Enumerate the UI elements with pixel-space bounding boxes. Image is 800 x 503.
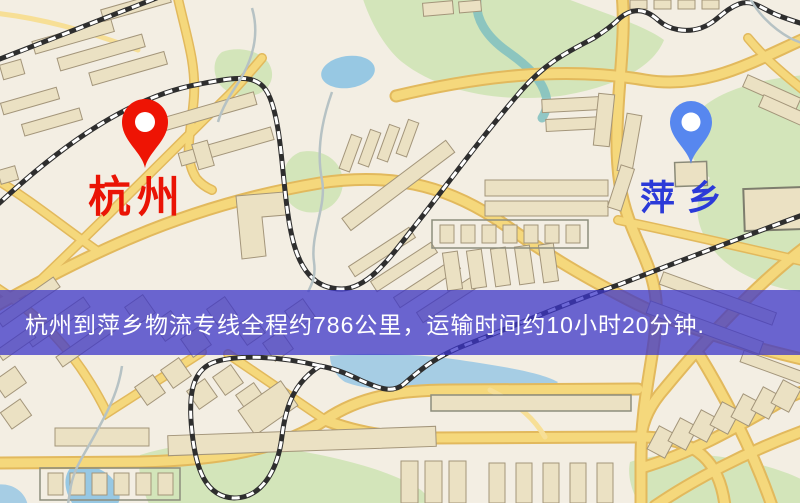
pin-hole [682, 113, 701, 132]
route-info-text: 杭州到萍乡物流专线全程约786公里，运输时间约10小时20分钟. [0, 306, 705, 340]
map-canvas: 杭州 萍乡 [0, 0, 800, 503]
route-info-banner: 杭州到萍乡物流专线全程约786公里，运输时间约10小时20分钟. [0, 290, 800, 355]
pin-hole [135, 112, 155, 132]
building-cluster-bottomcenter [401, 395, 631, 503]
pond-corner [0, 484, 28, 503]
hangzhou-label: 杭州 [88, 174, 186, 222]
logistics-route-map: 杭州 萍乡 杭州到萍乡物流专线全程约786公里，运输时间约10小时20分钟. [0, 0, 800, 503]
lake-top [319, 52, 377, 91]
pingxiang-label: 萍乡 [640, 179, 734, 218]
